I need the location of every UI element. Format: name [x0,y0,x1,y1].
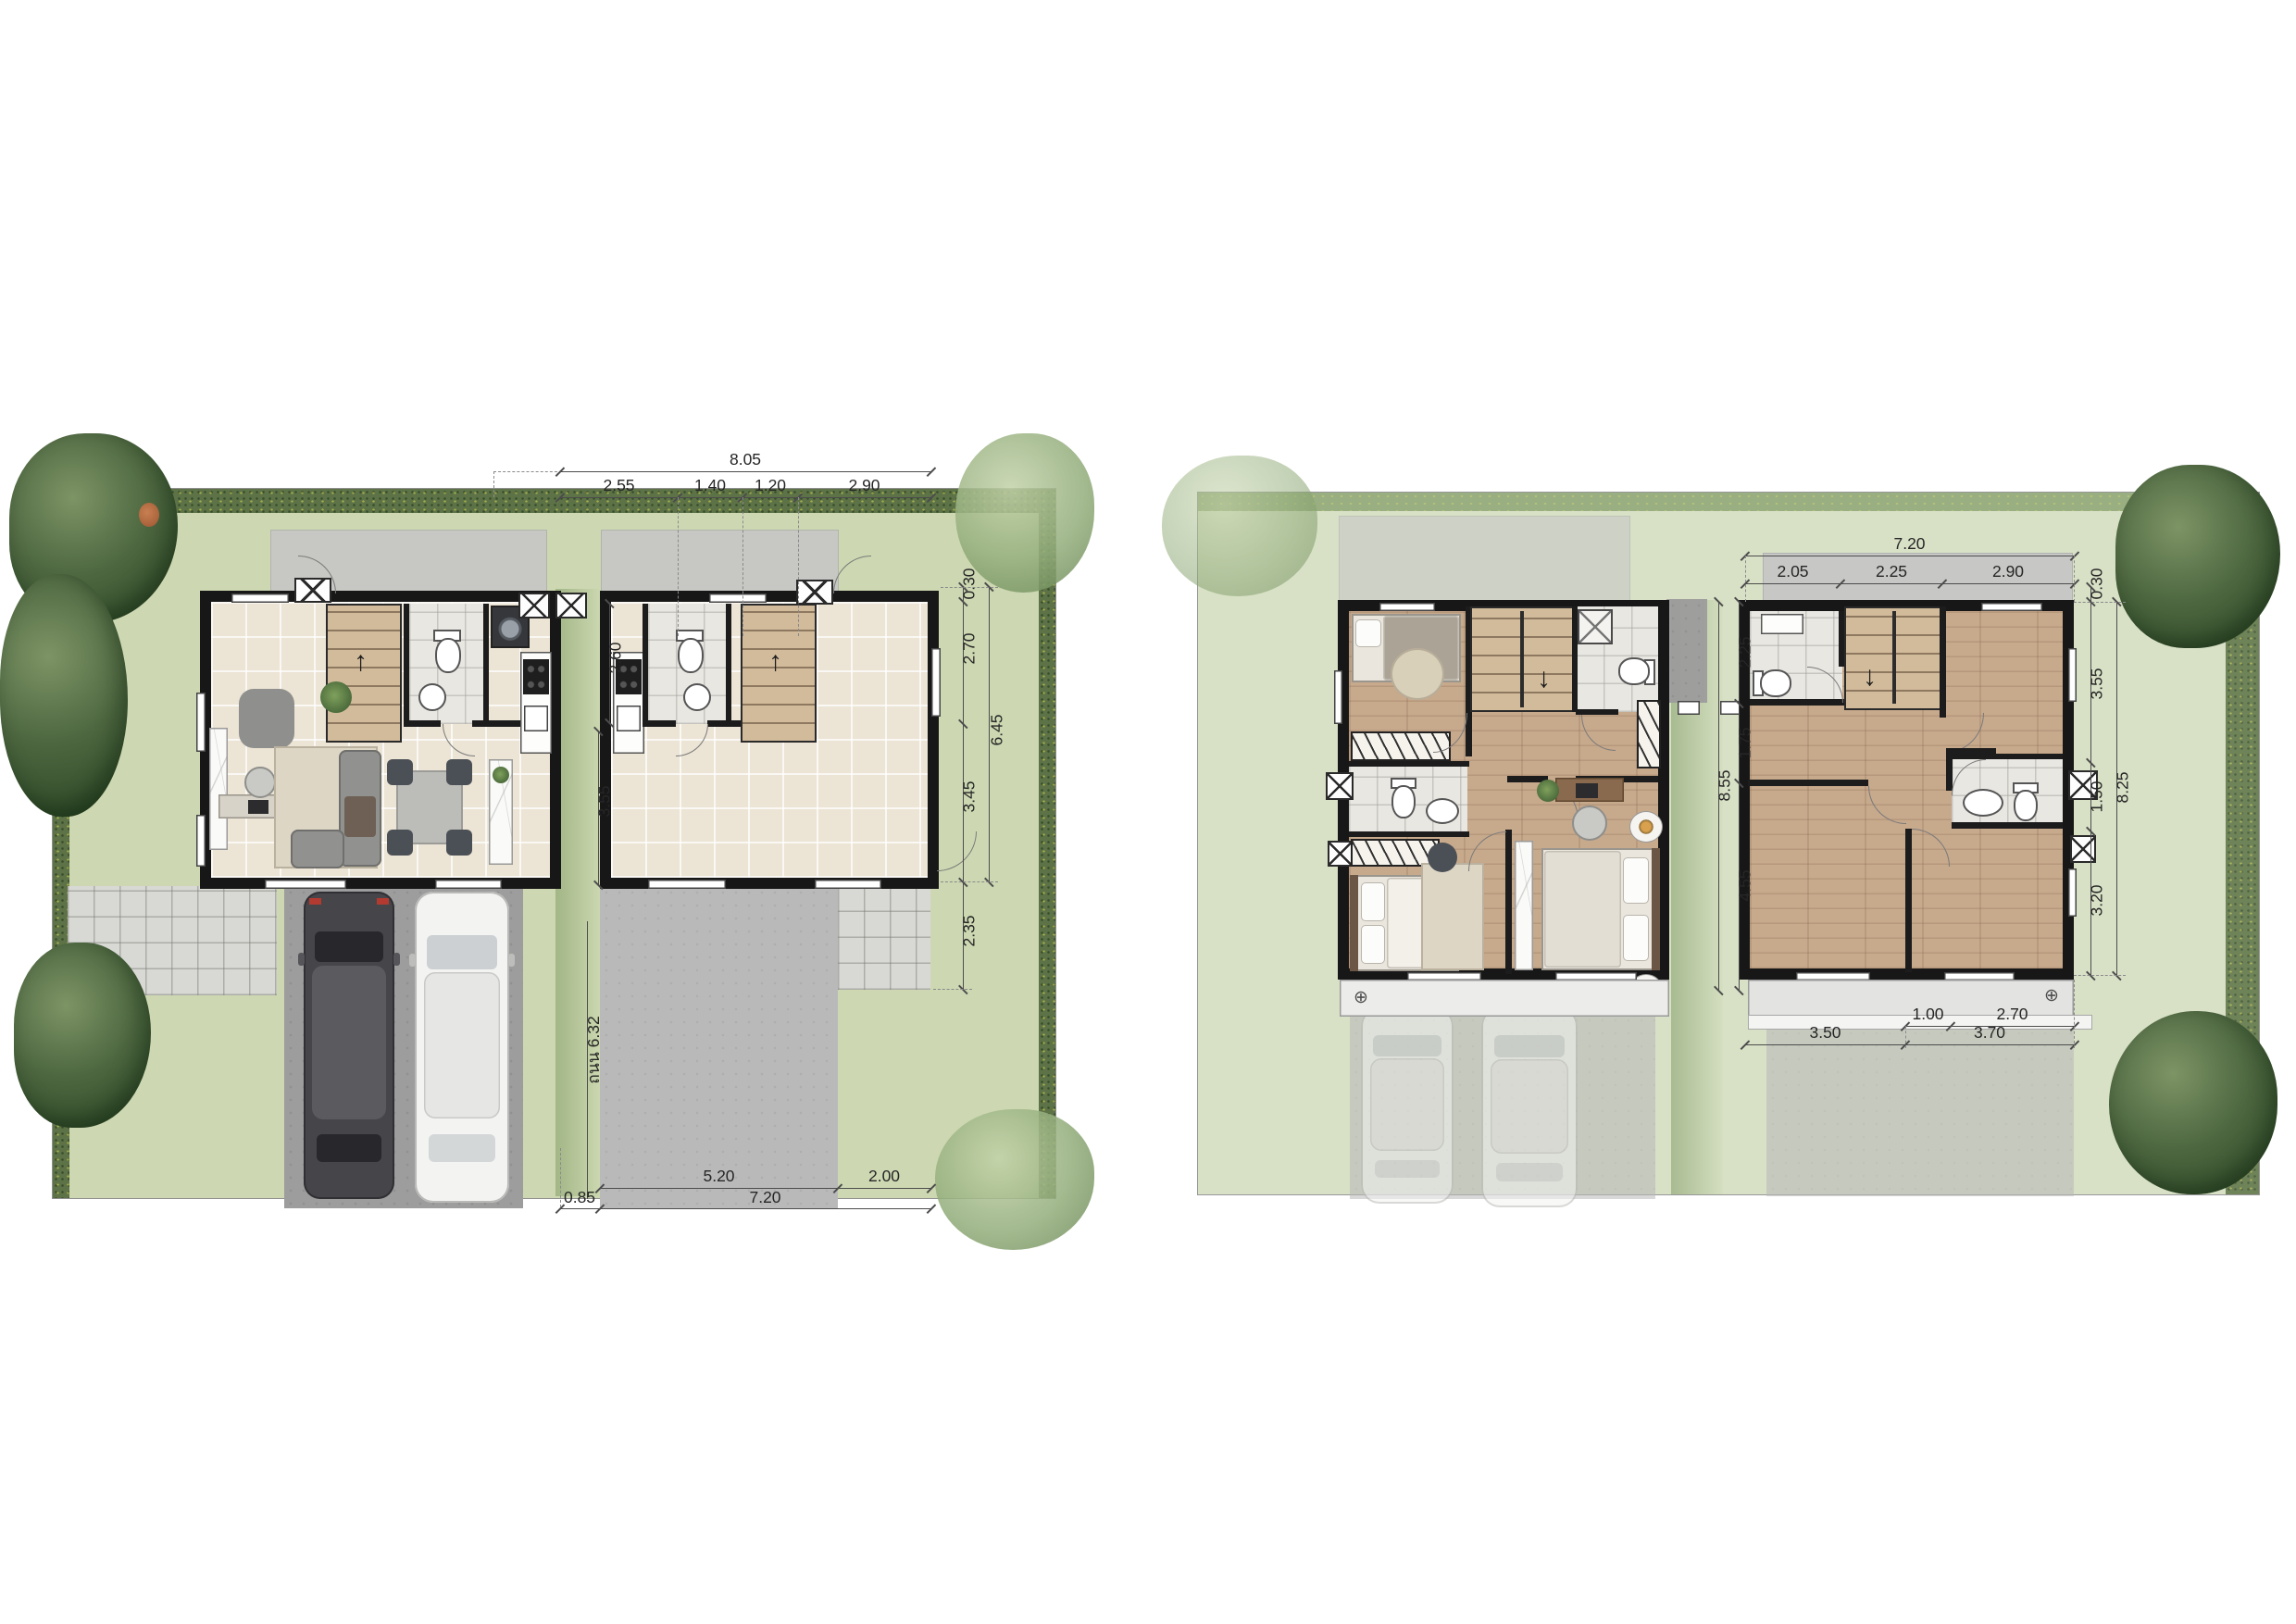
stairs-down-arrow: ↓ [1863,663,1877,691]
chair [1428,843,1457,872]
window [435,880,502,889]
partition [404,720,441,727]
window [1379,603,1435,611]
round-rug [1391,648,1444,700]
partition [1952,822,2063,829]
shaft-box [796,580,833,605]
partition [1946,754,1953,791]
dim-label: 2.60 [606,626,626,691]
window [2068,868,2077,917]
partition [1505,830,1512,974]
ext-line [941,587,998,588]
window [648,880,726,889]
ext-line [1745,556,1746,602]
potted-plant [320,681,352,713]
mirror-wardrobe [1515,841,1533,970]
stair-rail [1520,611,1524,707]
window [1334,670,1342,724]
partition [404,604,409,724]
partition [1349,831,1469,837]
side-yard-strip [555,589,600,1196]
dim-label: 3.20 [2088,868,2107,933]
dim-label: 8.05 [560,450,930,469]
ext-line [933,989,972,990]
sink [683,683,711,711]
sofa-seat [291,830,344,868]
dim-label: 2.05 [1745,562,1841,581]
sink [418,683,446,711]
shaft-box [555,593,587,618]
dim-label: 8.25 [2114,756,2133,820]
ext-line [941,881,998,882]
dim-label: 6.45 [988,698,1007,763]
ext-line [2074,556,2075,602]
balcony [1340,980,1669,1017]
wardrobe [1637,700,1661,768]
ac-condenser [1326,772,1354,800]
toilet [678,638,704,673]
partition [1349,761,1469,767]
hedge-top [1198,493,2259,511]
dim-line [560,497,930,498]
stairs-down-arrow: ↓ [1537,665,1551,693]
sink [1426,798,1459,824]
ext-line [678,497,679,636]
window [931,648,941,717]
ext-line [560,1148,561,1207]
ghost-car [1481,1007,1578,1207]
dim-label: 3.50 [1745,1023,1905,1043]
car-white [415,892,509,1203]
driveway-right-unit [600,886,838,1208]
dim-line [1745,556,2074,556]
ext-line [798,497,799,636]
window [815,880,881,889]
flower-symbol: ⊕ [1354,989,1368,1006]
dim-label: 2.35 [960,899,980,964]
bath-counter [1761,614,1803,634]
flower-symbol: ⊕ [2044,987,2059,1005]
tree-bottom-right [2109,1011,2277,1194]
ext-line [742,497,743,636]
dining-chair [446,830,472,856]
armchair [239,689,294,748]
dim-label: 4.55 [1736,854,1755,918]
laptop [1576,783,1598,798]
toilet [1618,657,1650,685]
partition [726,604,731,724]
desk-chair [1572,806,1607,841]
stairs-up-arrow: ↑ [768,648,782,676]
dim-label: 3.55 [2088,652,2107,717]
partition [643,604,648,724]
stair-rail [1892,611,1896,704]
dim-line [560,1208,930,1209]
dining-chair [446,759,472,785]
dim-line [560,471,930,472]
first-floor-plan: ↑ ↑ [0,0,1148,1624]
dim-label: 1.40 [678,476,742,495]
shaft-box [518,593,550,618]
shower [1578,609,1613,644]
dim-label: 1.50 [2088,765,2107,830]
console-left-wall [209,728,228,850]
unit-a-stove [523,659,549,694]
dim-line [1745,1044,2074,1045]
desk-chair [244,767,276,798]
partition [1940,606,1946,718]
ac-condenser [2070,835,2096,863]
window [196,693,206,752]
sink [1963,789,2003,817]
bedroom-rug [1421,863,1484,970]
tree-right-bottom [935,1109,1094,1250]
hedge-right [1039,489,1055,1198]
orange-bush [139,503,159,527]
toilet [435,638,461,673]
partition [483,604,489,724]
dim-label: 2.25 [1841,562,1942,581]
dim-label: 2.70 [1951,1005,2074,1024]
ext-line [2074,975,2126,976]
dining-chair [387,830,413,856]
ext-line [2074,980,2075,1048]
window [2068,648,2077,702]
ext-line [1905,1026,1906,1048]
toilet [1760,669,1791,697]
nightstand [1629,811,1663,843]
dim-label: 0.30 [2088,552,2107,617]
sofa-throw [344,796,376,837]
dim-label: 2.00 [838,1167,930,1186]
ac-unit [1678,701,1700,715]
ac-condenser [1328,841,1353,867]
dim-label: 2.70 [960,617,980,681]
bed-master [1541,848,1660,970]
terrace-right-unit [838,886,930,990]
window [709,593,767,603]
ghost-car [1361,1007,1454,1204]
window [231,593,289,603]
dim-label: 7.20 [600,1188,930,1207]
car-suv [304,892,394,1199]
dim-label: 1.20 [742,476,798,495]
dim-label: 8.55 [1716,754,1735,818]
ac-pad [1666,599,1707,703]
desk-laptop [248,800,268,814]
dim-label: 1.00 [1905,1005,1951,1024]
dim-label: 5.20 [600,1167,838,1186]
dim-label: 1.75 [1736,711,1755,776]
unit-b-kitchen-sink [617,706,641,731]
partition [1952,754,2063,759]
dim-label: 3.55 [595,769,615,834]
window [1981,603,2042,611]
dim-label: 3.45 [960,765,980,830]
ext-line [2074,602,2126,603]
dim-label: 2.25 [1736,620,1755,685]
shaft-box [294,578,331,603]
dim-label: 2.55 [560,476,678,495]
dim-line [1745,583,2074,584]
dining-chair [387,759,413,785]
island-plant [493,767,509,783]
window [196,815,206,867]
ghost-porch-eave [1340,517,1629,604]
second-floor-plan: ↓ ⊕ ↓ [1148,0,2296,1624]
dim-label: 3.70 [1905,1023,2074,1043]
tree-top-left-faint [1162,456,1317,596]
dim-label: 2.90 [798,476,930,495]
partition [643,720,676,727]
dim-label: 2.90 [1942,562,2074,581]
dim-label: 0.30 [960,552,980,617]
partition [1748,780,1868,786]
plant [1537,780,1559,802]
dim-label: ถนน 6.32 [580,999,606,1101]
dim-label: 7.20 [1745,534,2074,554]
ext-line [493,471,494,497]
partition [1905,829,1912,972]
toilet [2014,790,2038,821]
ext-line [493,471,562,472]
stairs-up-arrow: ↑ [354,648,368,676]
unit-a-kitchen-sink [524,706,548,731]
window [265,880,346,889]
toilet [1391,785,1416,818]
